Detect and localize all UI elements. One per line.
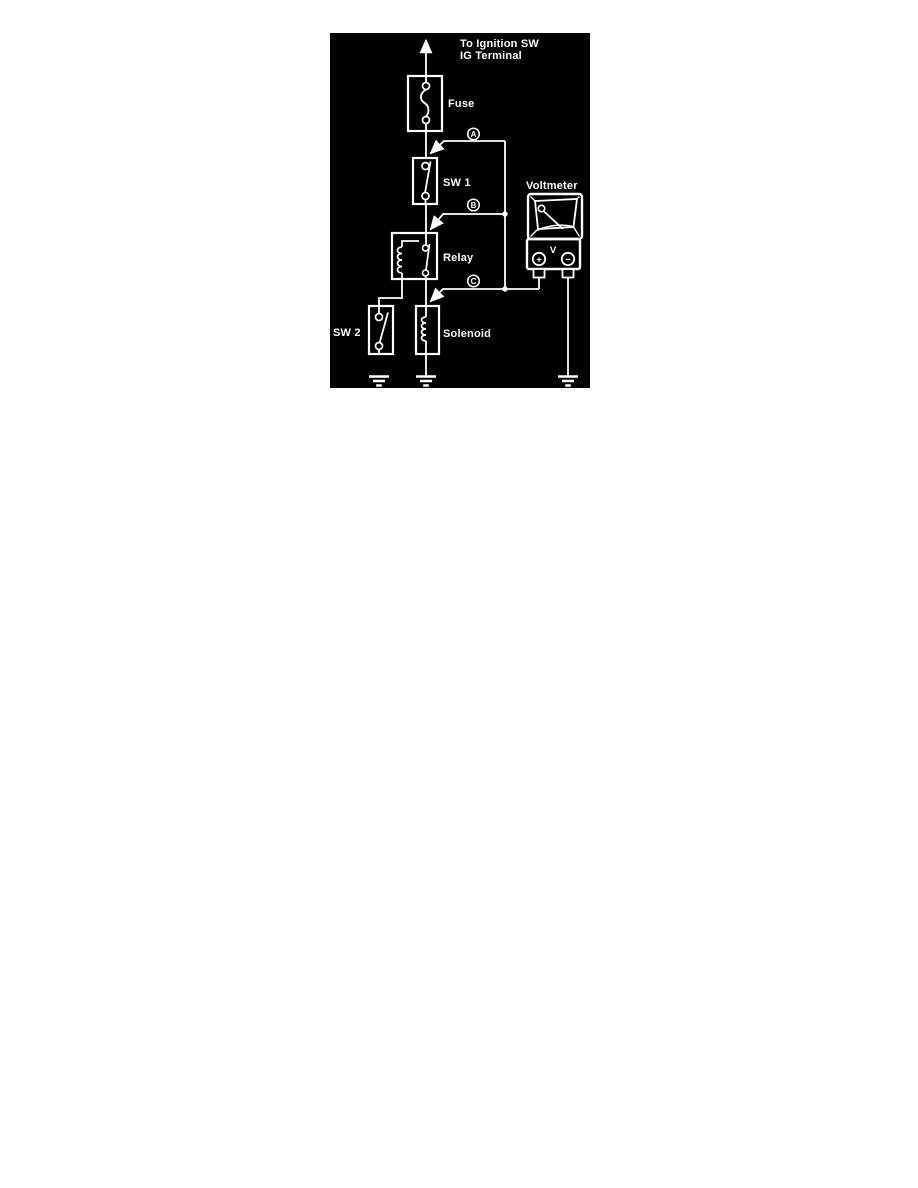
relay-component: Relay [392,233,474,279]
junction-dot-c [502,286,507,291]
sw1-component: SW 1 [413,158,471,204]
test-bus [431,141,540,302]
relay-contact-bottom [423,270,429,276]
test-point-a-label: A [471,130,477,139]
solenoid-component: Solenoid [416,306,491,354]
relay-coil-symbol [398,247,403,273]
fuse-terminal-top [423,83,430,90]
test-point-b-label: B [471,201,477,210]
fuse-label: Fuse [448,98,474,110]
voltmeter-component: Voltmeter V + − [526,180,582,377]
voltmeter-unit-label: V [550,245,557,256]
sw1-label: SW 1 [443,177,471,189]
voltmeter-minus-symbol: − [565,255,571,266]
header-line2: IG Terminal [460,50,522,62]
voltmeter-screen [535,199,577,229]
sw1-contact-top [422,163,429,170]
voltmeter-needle-pivot [538,205,544,211]
solenoid-box [416,306,439,354]
fuse-element-symbol [421,90,429,117]
test-wire-c [431,289,540,302]
ground-solenoid [416,377,436,386]
ground-sw2 [369,377,389,386]
test-wire-a [431,141,506,154]
test-point-c-label: C [471,277,477,286]
sw2-contact-top [376,314,383,321]
fuse-terminal-bottom [423,117,430,124]
voltmeter-plus-symbol: + [536,255,542,266]
relay-label: Relay [443,252,474,264]
fuse-component: Fuse [408,76,474,131]
voltmeter-minus-tab [563,269,574,278]
voltmeter-label: Voltmeter [526,180,578,192]
sw2-contact-bottom [376,343,383,350]
sw2-component: SW 2 [333,306,393,354]
solenoid-label: Solenoid [443,328,491,340]
sw2-label: SW 2 [333,327,361,339]
test-wire-b [431,214,506,230]
manual-page: To Ignition SW IG Terminal [0,0,918,1188]
header: To Ignition SW IG Terminal [460,38,539,62]
ground-symbols [369,377,578,386]
header-line1: To Ignition SW [460,38,539,50]
ground-voltmeter [558,377,578,386]
relay-coil-top-lead [402,241,419,247]
circuit-diagram-panel: To Ignition SW IG Terminal [330,33,590,388]
sw1-contact-bottom [422,193,429,200]
circuit-diagram: To Ignition SW IG Terminal [330,33,590,388]
relay-contact-top [423,245,429,251]
solenoid-coil-symbol [422,317,427,341]
junction-dot-b [502,211,507,216]
voltmeter-plus-tab [534,269,545,278]
